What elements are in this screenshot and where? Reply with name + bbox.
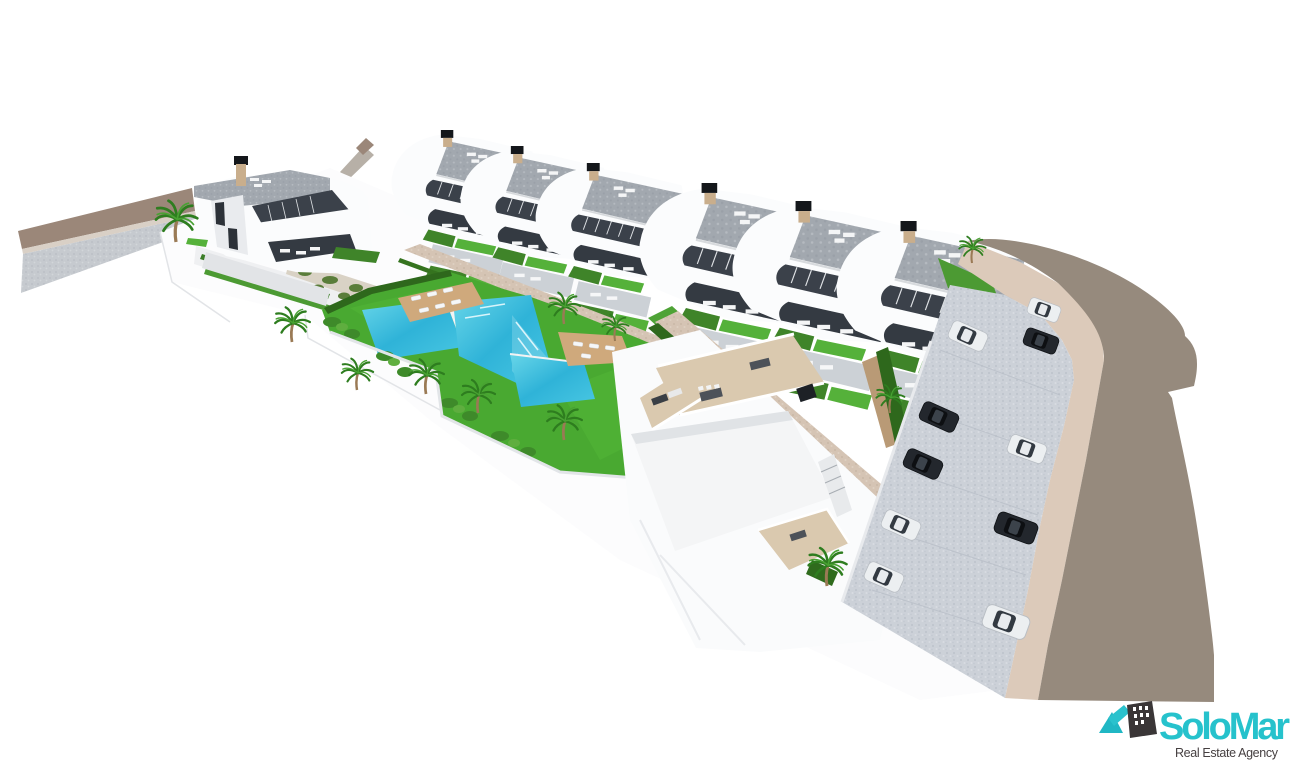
svg-text:SoloMar: SoloMar bbox=[1159, 706, 1290, 748]
svg-text:Real Estate Agency: Real Estate Agency bbox=[1175, 746, 1279, 760]
